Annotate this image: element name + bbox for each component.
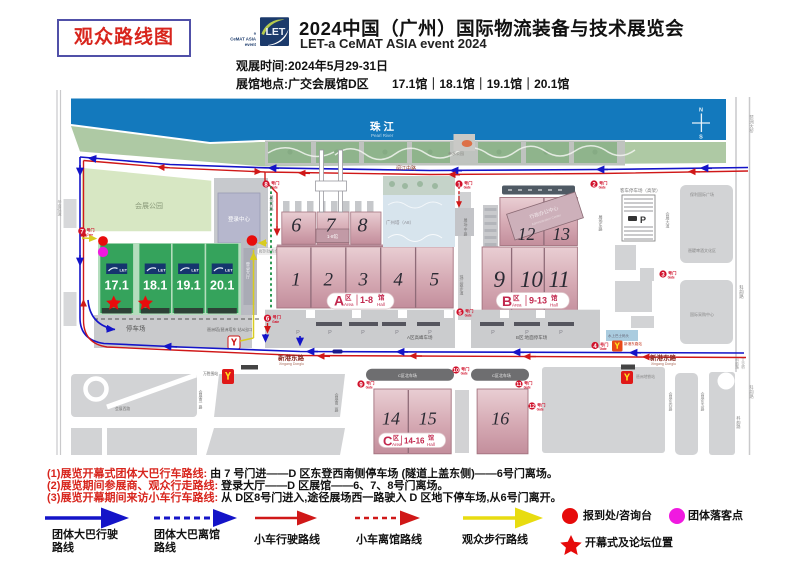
svg-text:琶洲地铁站: 琶洲地铁站 [636, 374, 655, 379]
svg-text:馆: 馆 [551, 293, 558, 302]
svg-text:科韵路: 科韵路 [749, 384, 755, 400]
svg-text:Hall: Hall [377, 302, 385, 307]
svg-text:11: 11 [549, 267, 570, 292]
svg-text:19.1: 19.1 [176, 279, 200, 293]
svg-text:Gate: Gate [464, 186, 471, 190]
svg-text:科韵路: 科韵路 [739, 284, 745, 300]
svg-text:会展东五路: 会展东五路 [700, 391, 705, 411]
svg-text:1: 1 [291, 270, 301, 291]
svg-text:新港东路: 新港东路 [278, 353, 305, 362]
svg-text:13: 13 [552, 224, 570, 244]
svg-text:展场西路: 展场西路 [270, 194, 275, 212]
svg-text:珠江: 珠江 [370, 120, 397, 133]
svg-text:6: 6 [291, 215, 301, 237]
svg-text:LET: LET [158, 268, 166, 273]
svg-text:7: 7 [326, 215, 337, 237]
svg-text:Gate: Gate [366, 386, 373, 390]
svg-text:14: 14 [382, 409, 400, 429]
svg-text:12: 12 [518, 224, 536, 244]
svg-text:阅江中路: 阅江中路 [396, 165, 416, 172]
svg-text:A区高峰车场: A区高峰车场 [407, 334, 433, 341]
svg-text:16: 16 [491, 409, 509, 429]
svg-text:Gate: Gate [600, 347, 607, 351]
svg-text:20.1: 20.1 [210, 279, 234, 293]
svg-text:会展西路: 会展西路 [115, 406, 130, 411]
svg-text:18.1: 18.1 [143, 279, 167, 293]
svg-text:1-8: 1-8 [360, 295, 373, 305]
svg-text:N: N [699, 108, 703, 114]
svg-text:Gate: Gate [524, 386, 531, 390]
svg-text:会展公园: 会展公园 [135, 201, 163, 210]
svg-text:10: 10 [453, 368, 459, 374]
svg-text:区: 区 [393, 434, 399, 442]
svg-text:P: P [328, 330, 332, 336]
svg-text:会展大道: 会展大道 [666, 211, 671, 229]
svg-text:C区北车场: C区北车场 [398, 372, 417, 378]
svg-text:Gate: Gate [87, 233, 94, 237]
svg-text:C区北车场: C区北车场 [492, 372, 511, 378]
svg-text:区: 区 [345, 294, 352, 302]
svg-text:客车停车场（高架）: 客车停车场（高架） [620, 187, 661, 194]
svg-text:琶洲塔(琶洲塔东 站A出口: 琶洲塔(琶洲塔东 站A出口 [207, 326, 252, 332]
svg-text:珠江散步道: 珠江散步道 [460, 274, 465, 296]
svg-text:11: 11 [516, 382, 522, 388]
svg-text:区: 区 [513, 294, 520, 302]
svg-text:新港东路: 新港东路 [650, 353, 677, 362]
svg-text:馆: 馆 [378, 293, 385, 302]
svg-text:8: 8 [358, 215, 368, 237]
svg-text:3: 3 [357, 270, 368, 291]
svg-text:科韵路: 科韵路 [734, 357, 739, 369]
svg-text:Gate: Gate [465, 314, 472, 318]
svg-text:琶洲大桥: 琶洲大桥 [749, 115, 755, 135]
svg-text:2: 2 [324, 270, 334, 291]
svg-text:Gate: Gate [461, 372, 468, 376]
svg-text:P: P [296, 330, 300, 336]
svg-text:登录中心: 登录中心 [228, 215, 251, 223]
svg-text:9: 9 [493, 267, 505, 292]
svg-text:亲水公园: 亲水公园 [448, 150, 464, 156]
svg-text:4: 4 [393, 270, 403, 291]
svg-text:水上巴士码头: 水上巴士码头 [608, 333, 629, 338]
svg-text:S: S [699, 135, 703, 141]
svg-text:Area: Area [512, 303, 522, 308]
svg-text:Hall: Hall [550, 303, 558, 308]
svg-text:LET: LET [225, 268, 233, 273]
svg-text:10: 10 [520, 267, 544, 292]
svg-text:登录大厅: 登录大厅 [245, 261, 251, 280]
svg-text:琶醍啤酒文化区: 琶醍啤酒文化区 [688, 247, 716, 253]
svg-text:会展东四路: 会展东四路 [668, 391, 673, 411]
svg-text:P: P [491, 330, 495, 336]
svg-text:会展南二路: 会展南二路 [334, 392, 339, 412]
svg-text:9-13: 9-13 [529, 296, 547, 306]
svg-text:12: 12 [529, 404, 535, 410]
svg-text:7: 7 [80, 228, 84, 235]
svg-text:P: P [640, 215, 646, 225]
svg-text:Gate: Gate [271, 186, 278, 190]
svg-text:新港东路站: 新港东路站 [624, 341, 642, 346]
svg-text:Area: Area [344, 302, 354, 307]
svg-text:5: 5 [430, 270, 440, 291]
svg-text:国际采购中心: 国际采购中心 [690, 311, 714, 317]
svg-text:P: P [395, 330, 399, 336]
svg-text:展场中路: 展场中路 [463, 217, 468, 237]
svg-text:LET: LET [120, 268, 128, 273]
svg-text:停车场: 停车场 [126, 324, 146, 333]
svg-text:14-16: 14-16 [404, 437, 425, 446]
svg-text:Area: Area [392, 442, 402, 447]
svg-text:Gate: Gate [537, 408, 544, 412]
svg-text:华南快速: 华南快速 [58, 199, 63, 217]
svg-text:LET: LET [191, 268, 199, 273]
svg-text:Gate: Gate [272, 320, 279, 324]
svg-text:Xingang Donglu: Xingang Donglu [651, 362, 676, 366]
svg-text:广州塔（A8）: 广州塔（A8） [386, 219, 414, 226]
svg-text:17.1: 17.1 [105, 279, 129, 293]
svg-text:展场东路: 展场东路 [599, 214, 604, 232]
svg-text:P: P [361, 330, 365, 336]
svg-text:P: P [559, 330, 563, 336]
svg-text:B区:地面停车场: B区:地面停车场 [516, 334, 548, 341]
svg-text:Gate: Gate [668, 276, 675, 280]
svg-text:万胜围站: 万胜围站 [203, 371, 218, 376]
svg-text:Xingang Donglu: Xingang Donglu [279, 362, 304, 366]
svg-text:馆: 馆 [428, 434, 434, 442]
svg-text:Gate: Gate [599, 186, 606, 190]
svg-text:B: B [502, 293, 512, 309]
svg-text:保利国际广场: 保利国际广场 [690, 191, 714, 197]
svg-text:科韵路: 科韵路 [736, 415, 742, 430]
svg-text:Hall: Hall [427, 442, 435, 447]
svg-text:15: 15 [419, 409, 437, 429]
svg-text:立交桥: 立交桥 [740, 357, 745, 369]
svg-text:会展南一路: 会展南一路 [198, 389, 203, 409]
svg-text:A: A [334, 293, 344, 309]
svg-text:Pearl River: Pearl River [371, 133, 394, 138]
